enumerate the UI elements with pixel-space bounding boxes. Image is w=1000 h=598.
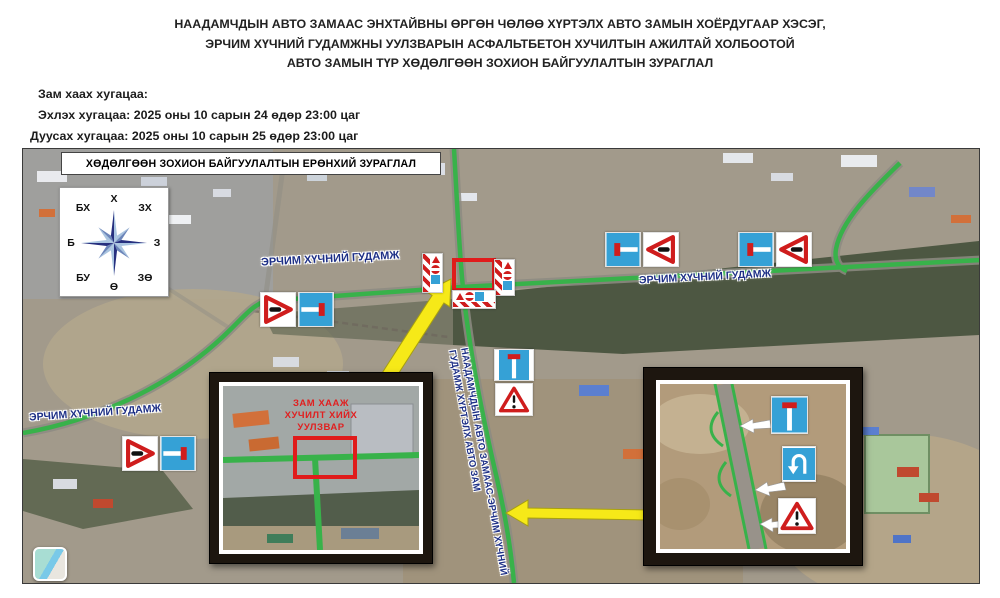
barrier-stripes — [453, 302, 495, 307]
dead-end-left-sign-icon — [738, 232, 774, 267]
no-entry-mini-sign-icon — [465, 292, 474, 301]
traffic-plan-page: НААДАМЧДЫН АВТО ЗАМААС ЭНХТАЙВНЫ ӨРГӨН Ч… — [0, 0, 1000, 598]
title-line-3: АВТО ЗАМЫН ТҮР ХӨДӨЛГӨӨН ЗОХИОН БАЙГУУЛА… — [0, 54, 1000, 74]
barrier-mini-signs — [502, 260, 513, 295]
no-entry-mini-sign-icon — [431, 265, 440, 274]
inset-photo-graphic — [660, 384, 846, 549]
barrier-stripes — [423, 254, 430, 292]
barrier-mini-signs — [453, 291, 495, 302]
inset-closed-intersection: ЗАМ ХААЖ ХУЧИЛТ ХИЙХ УУЛЗВАР — [209, 372, 433, 564]
inset-caption-line-1: ЗАМ ХААЖ — [223, 398, 419, 410]
overview-label-text: ХӨДӨЛГӨӨН ЗОХИОН БАЙГУУЛАЛТЫН ЕРӨНХИЙ ЗУ… — [86, 158, 416, 170]
compass-star-icon — [79, 208, 149, 278]
u-turn-mini-sign-icon — [475, 292, 484, 301]
barrier-stripes — [495, 260, 502, 295]
roadwork-mini-sign-icon — [455, 292, 464, 301]
dead-end-ahead-sign-icon — [494, 349, 534, 381]
title-line-2: ЭРЧИМ ХҮЧНИЙ ГУДАМЖНЫ УУЛЗВАРЫН АСФАЛЬТБ… — [0, 35, 1000, 55]
give-way-left-sign-icon — [776, 232, 812, 267]
give-way-left-sign-icon — [643, 232, 679, 267]
compass-northeast-label: ЗХ — [138, 202, 152, 214]
inset-white-frame: ЗАМ ХААЖ ХУЧИЛТ ХИЙХ УУЛЗВАР — [219, 382, 423, 554]
compass-west-label: Б — [67, 237, 75, 249]
yellow-arrow-to-road — [506, 500, 648, 526]
sign-pair-east-outer — [738, 232, 812, 267]
u-turn-sign-icon — [782, 446, 816, 482]
schedule-start: Эхлэх хугацаа: 2025 оны 10 сарын 24 өдөр… — [30, 105, 360, 126]
closed-intersection-marker — [452, 258, 496, 292]
compass-north-label: Х — [110, 193, 117, 205]
dead-end-ahead-sign-icon — [771, 396, 808, 434]
no-entry-mini-sign-icon — [503, 271, 512, 280]
inset-uturn-detour — [643, 367, 863, 566]
sign-stack-south — [494, 349, 534, 416]
compass-southwest-label: БУ — [76, 272, 90, 284]
roadwork-mini-sign-icon — [431, 255, 440, 264]
sign-pair-east-inner — [605, 232, 679, 267]
barrier-mini-signs — [430, 254, 441, 292]
map-canvas: ХӨДӨЛГӨӨН ЗОХИОН БАЙГУУЛАЛТЫН ЕРӨНХИЙ ЗУ… — [22, 148, 980, 584]
inset-photo-area — [660, 384, 846, 549]
barrier-board-west-icon — [422, 253, 443, 293]
inset-white-frame — [656, 380, 850, 553]
inset-photo-area: ЗАМ ХААЖ ХУЧИЛТ ХИЙХ УУЛЗВАР — [223, 386, 419, 550]
compass-rose: Х ЗХ З ЗӨ Ө БУ Б БХ — [59, 187, 169, 297]
schedule-heading: Зам хаах хугацаа: — [30, 84, 360, 105]
warning-sign-icon — [778, 498, 816, 534]
give-way-right-sign-icon — [260, 292, 296, 327]
sign-pair-west-outer — [122, 436, 196, 471]
overview-label-box: ХӨДӨЛГӨӨН ЗОХИОН БАЙГУУЛАЛТЫН ЕРӨНХИЙ ЗУ… — [61, 152, 441, 175]
inset-caption-line-3: УУЛЗВАР — [223, 422, 419, 434]
page-title: НААДАМЧДЫН АВТО ЗАМААС ЭНХТАЙВНЫ ӨРГӨН Ч… — [0, 15, 1000, 74]
inset-caption-line-2: ХУЧИЛТ ХИЙХ — [223, 410, 419, 422]
inset-closed-intersection-marker — [293, 436, 357, 479]
roadwork-mini-sign-icon — [503, 261, 512, 270]
u-turn-mini-sign-icon — [431, 275, 440, 284]
barrier-board-south-icon — [452, 290, 496, 309]
dead-end-left-sign-icon — [605, 232, 641, 267]
barrier-board-east-icon — [494, 259, 515, 296]
title-line-1: НААДАМЧДЫН АВТО ЗАМААС ЭНХТАЙВНЫ ӨРГӨН Ч… — [0, 15, 1000, 35]
dead-end-right-sign-icon — [160, 436, 196, 471]
give-way-right-sign-icon — [122, 436, 158, 471]
inset-caption: ЗАМ ХААЖ ХУЧИЛТ ХИЙХ УУЛЗВАР — [223, 398, 419, 434]
schedule-end: Дуусах хугацаа: 2025 оны 10 сарын 25 өдө… — [30, 126, 360, 147]
u-turn-mini-sign-icon — [503, 281, 512, 290]
dead-end-right-sign-icon — [298, 292, 334, 327]
compass-southeast-label: ЗӨ — [138, 272, 153, 284]
minimap-icon — [33, 547, 67, 581]
compass-south-label: Ө — [110, 281, 118, 293]
compass-east-label: З — [154, 237, 161, 249]
closure-schedule: Зам хаах хугацаа: Эхлэх хугацаа: 2025 он… — [30, 84, 360, 147]
compass-northwest-label: БХ — [76, 202, 90, 214]
sign-pair-west-inner — [260, 292, 334, 327]
warning-sign-icon — [495, 383, 533, 416]
